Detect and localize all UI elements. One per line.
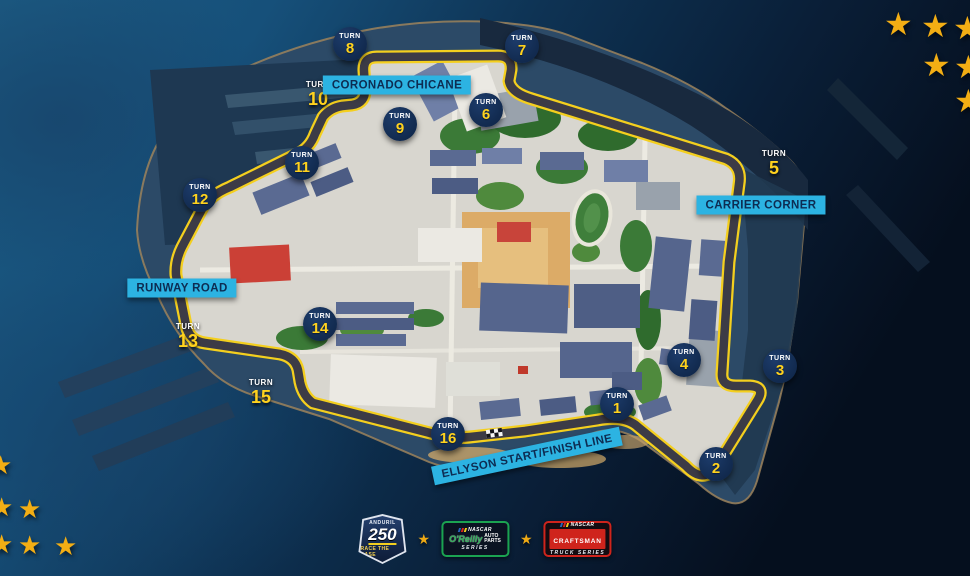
- event-badge: ANDURIL 250 RACE THE BASE: [358, 514, 406, 564]
- star-icon: ★: [18, 532, 41, 558]
- star-icon: ★: [417, 531, 430, 548]
- turn-marker-14: TURN14: [303, 307, 337, 341]
- star-icon: ★: [54, 533, 77, 559]
- turn-marker-9: TURN9: [383, 107, 417, 141]
- track-label-coronado-chicane: CORONADO CHICANE: [323, 76, 471, 95]
- nascar-wordmark: NASCAR: [571, 522, 595, 528]
- track-label-carrier-corner: CARRIER CORNER: [696, 196, 825, 215]
- star-icon: ★: [0, 531, 13, 557]
- footer-logos: ANDURIL 250 RACE THE BASE ★ NASCAR O'Rei…: [358, 514, 611, 564]
- oreilly-series-word: SERIES: [461, 545, 488, 551]
- oreilly-wordmark: O'Reilly: [449, 534, 482, 544]
- turn-marker-4: TURN4: [667, 343, 701, 377]
- turn-marker-3: TURN3: [763, 349, 797, 383]
- turn-marker-5: TURN5: [757, 146, 791, 180]
- track-label-runway-road: RUNWAY ROAD: [127, 279, 236, 298]
- star-icon: ★: [953, 12, 970, 44]
- oreilly-parts: PARTS: [484, 539, 501, 544]
- turn-marker-1: TURN1: [600, 387, 634, 421]
- star-icon: ★: [0, 452, 12, 478]
- craftsman-wordmark: CRAFTSMAN: [553, 538, 601, 545]
- craftsman-series-word: TRUCK SERIES: [550, 550, 605, 556]
- event-badge-number: 250: [368, 527, 396, 545]
- star-icon: ★: [18, 496, 41, 522]
- turn-marker-7: TURN7: [505, 29, 539, 63]
- turn-marker-13: TURN13: [171, 319, 205, 353]
- star-icon: ★: [884, 8, 913, 40]
- turn-marker-8: TURN8: [333, 27, 367, 61]
- turn-marker-11: TURN11: [285, 146, 319, 180]
- turn-marker-15: TURN15: [244, 375, 278, 409]
- star-icon: ★: [954, 85, 970, 117]
- event-badge-tagline: RACE THE BASE: [360, 546, 404, 558]
- star-icon: ★: [921, 10, 950, 42]
- star-icon: ★: [520, 531, 533, 548]
- turn-marker-16: TURN16: [431, 417, 465, 451]
- star-icon: ★: [922, 49, 951, 81]
- turn-marker-6: TURN6: [469, 93, 503, 127]
- oreilly-series-logo: NASCAR O'Reilly AUTO PARTS SERIES: [441, 521, 509, 557]
- nascar-wordmark: NASCAR: [468, 527, 492, 533]
- craftsman-series-logo: NASCAR CRAFTSMAN TRUCK SERIES: [544, 521, 612, 557]
- turn-marker-2: TURN2: [699, 447, 733, 481]
- star-icon: ★: [0, 494, 13, 520]
- star-icon: ★: [954, 51, 970, 83]
- nascar-bars-icon: [561, 523, 569, 527]
- track-map-page: TURN1TURN2TURN3TURN4TURN5TURN6TURN7TURN8…: [0, 0, 970, 576]
- nascar-bars-icon: [458, 528, 466, 532]
- turn-marker-12: TURN12: [183, 178, 217, 212]
